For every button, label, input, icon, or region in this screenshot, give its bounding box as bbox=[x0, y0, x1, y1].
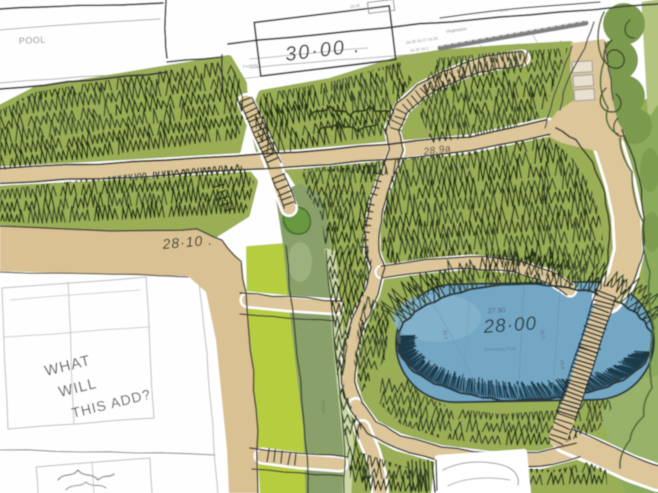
svg-text:27.90: 27.90 bbox=[488, 307, 506, 315]
svg-text:POOL: POOL bbox=[19, 35, 47, 46]
svg-text:Hedge: Hedge bbox=[397, 332, 402, 345]
svg-text:28·00: 28·00 bbox=[482, 313, 538, 338]
svg-text:Hedge: Hedge bbox=[321, 400, 326, 414]
